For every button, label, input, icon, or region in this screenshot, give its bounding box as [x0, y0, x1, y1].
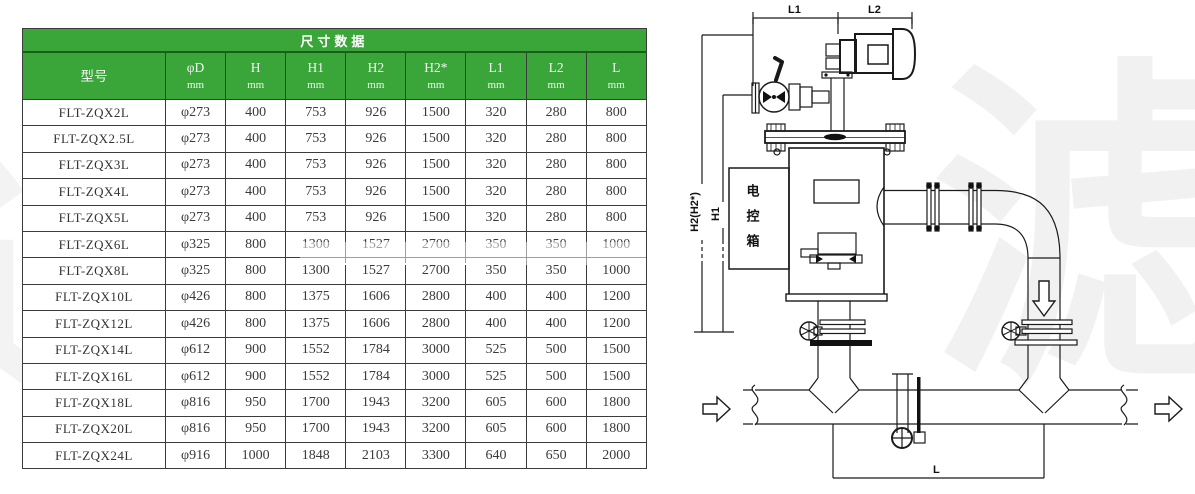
value-cell: 400 — [226, 205, 286, 231]
table-row: FLT-ZQX12Lφ4268001375160628004004001200 — [23, 311, 647, 337]
value-cell: 1500 — [406, 152, 466, 178]
value-cell: 525 — [466, 363, 526, 389]
value-cell: 350 — [466, 231, 526, 257]
value-cell: φ273 — [166, 126, 226, 152]
value-cell: 753 — [286, 100, 346, 126]
column-header: Hmm — [226, 52, 286, 100]
table-row: FLT-ZQX6Lφ3258001300152727003503501000 — [23, 231, 647, 257]
value-cell: 2103 — [346, 443, 406, 469]
value-cell: 1500 — [406, 205, 466, 231]
pipeline-valve — [892, 374, 925, 448]
model-cell: FLT-ZQX12L — [23, 311, 166, 337]
value-cell: φ273 — [166, 205, 226, 231]
value-cell: 800 — [226, 311, 286, 337]
value-cell: 320 — [466, 152, 526, 178]
table-row: FLT-ZQX4Lφ2734007539261500320280800 — [23, 179, 647, 205]
value-cell: 320 — [466, 126, 526, 152]
value-cell: 2800 — [406, 284, 466, 310]
table-header-row: 型号φDmmHmmH1mmH2mmH2*mmL1mmL2mmLmm — [23, 52, 647, 100]
inlet-valve — [752, 58, 829, 113]
value-cell: 1943 — [346, 390, 406, 416]
value-cell: 350 — [526, 258, 586, 284]
value-cell: 600 — [526, 390, 586, 416]
column-header: H2mm — [346, 52, 406, 100]
table-row: FLT-ZQX18Lφ8169501700194332006056001800 — [23, 390, 647, 416]
outlet-butterfly-valve — [1002, 320, 1077, 345]
value-cell: φ612 — [166, 363, 226, 389]
pipe-break-left — [752, 385, 758, 425]
dim-label-h2: H2(H2*) — [689, 192, 701, 232]
value-cell: 1527 — [346, 231, 406, 257]
flow-in-arrow-icon — [703, 397, 730, 421]
value-cell: 3200 — [406, 390, 466, 416]
flow-down-arrow-icon — [1033, 281, 1055, 316]
model-cell: FLT-ZQX16L — [23, 363, 166, 389]
sight-glass — [814, 180, 859, 203]
value-cell: 753 — [286, 126, 346, 152]
value-cell: φ273 — [166, 179, 226, 205]
model-cell: FLT-ZQX6L — [23, 231, 166, 257]
dimension-l: L — [833, 424, 1044, 478]
value-cell: 1606 — [346, 284, 406, 310]
value-cell: 900 — [226, 363, 286, 389]
value-cell: 2800 — [406, 311, 466, 337]
model-cell: FLT-ZQX3L — [23, 152, 166, 178]
column-header: H2*mm — [406, 52, 466, 100]
value-cell: 350 — [466, 258, 526, 284]
model-cell: FLT-ZQX4L — [23, 179, 166, 205]
value-cell: 900 — [226, 337, 286, 363]
flow-arrows — [703, 397, 1182, 421]
value-cell: 1200 — [586, 284, 646, 310]
value-cell: 3200 — [406, 416, 466, 442]
column-header: H1mm — [286, 52, 346, 100]
value-cell: 3300 — [406, 443, 466, 469]
value-cell: 1500 — [586, 363, 646, 389]
value-cell: 650 — [526, 443, 586, 469]
column-header: 型号 — [23, 52, 166, 100]
value-cell: 400 — [526, 284, 586, 310]
value-cell: 400 — [526, 311, 586, 337]
value-cell: 2700 — [406, 231, 466, 257]
value-cell: 1300 — [286, 231, 346, 257]
value-cell: 1000 — [226, 443, 286, 469]
value-cell: 2000 — [586, 443, 646, 469]
value-cell: 1200 — [586, 311, 646, 337]
flow-out-arrow-icon — [1155, 397, 1182, 421]
model-cell: FLT-ZQX2.5L — [23, 126, 166, 152]
dim-label-l2: L2 — [868, 4, 881, 16]
value-cell: φ273 — [166, 100, 226, 126]
value-cell: 800 — [586, 179, 646, 205]
value-cell: 525 — [466, 337, 526, 363]
value-cell: 500 — [526, 363, 586, 389]
value-cell: 1300 — [286, 258, 346, 284]
value-cell: 1527 — [346, 258, 406, 284]
value-cell: 1606 — [346, 311, 406, 337]
control-box: 电控箱 — [729, 168, 789, 269]
elbow-inner — [995, 224, 1028, 258]
value-cell: φ325 — [166, 231, 226, 257]
value-cell: 280 — [526, 152, 586, 178]
value-cell: φ816 — [166, 416, 226, 442]
value-cell: φ426 — [166, 311, 226, 337]
value-cell: 753 — [286, 179, 346, 205]
value-cell: 605 — [466, 390, 526, 416]
value-cell: 926 — [346, 126, 406, 152]
value-cell: 926 — [346, 205, 406, 231]
value-cell: 1500 — [406, 126, 466, 152]
value-cell: 800 — [226, 231, 286, 257]
value-cell: 1500 — [406, 100, 466, 126]
value-cell: 1375 — [286, 311, 346, 337]
value-cell: 400 — [226, 179, 286, 205]
value-cell: 3000 — [406, 337, 466, 363]
value-cell: 400 — [226, 100, 286, 126]
model-cell: FLT-ZQX10L — [23, 284, 166, 310]
value-cell: φ916 — [166, 443, 226, 469]
nozzle-bulge — [877, 187, 884, 226]
actuator-motor — [822, 29, 915, 131]
model-cell: FLT-ZQX14L — [23, 337, 166, 363]
dimension-table: 尺寸数据 型号φDmmHmmH1mmH2mmH2*mmL1mmL2mmLmm F… — [22, 28, 646, 469]
value-cell: 400 — [466, 311, 526, 337]
value-cell: φ325 — [166, 258, 226, 284]
value-cell: 1784 — [346, 363, 406, 389]
value-cell: 926 — [346, 100, 406, 126]
model-cell: FLT-ZQX20L — [23, 416, 166, 442]
value-cell: 280 — [526, 126, 586, 152]
model-cell: FLT-ZQX5L — [23, 205, 166, 231]
value-cell: 1000 — [586, 258, 646, 284]
table-title-row: 尺寸数据 — [23, 29, 647, 53]
table-row: FLT-ZQX20Lφ8169501700194332006056001800 — [23, 416, 647, 442]
column-header: φDmm — [166, 52, 226, 100]
value-cell: 753 — [286, 152, 346, 178]
dimension-h2-h1: H2(H2*) H1 — [689, 35, 753, 332]
value-cell: 280 — [526, 205, 586, 231]
value-cell: 1700 — [286, 416, 346, 442]
table-title: 尺寸数据 — [23, 29, 647, 53]
value-cell: 800 — [586, 152, 646, 178]
value-cell: 1500 — [586, 337, 646, 363]
table-row: FLT-ZQX24Lφ91610001848210333006406502000 — [23, 443, 647, 469]
model-cell: FLT-ZQX18L — [23, 390, 166, 416]
value-cell: φ816 — [166, 390, 226, 416]
table-row: FLT-ZQX16Lφ6129001552178430005255001500 — [23, 363, 647, 389]
value-cell: 753 — [286, 205, 346, 231]
filter-vessel — [786, 148, 887, 301]
dim-label-h1: H1 — [710, 207, 722, 221]
table-row: FLT-ZQX8Lφ3258001300152727003503501000 — [23, 258, 647, 284]
value-cell: 640 — [466, 443, 526, 469]
value-cell: 605 — [466, 416, 526, 442]
value-cell: 400 — [466, 284, 526, 310]
value-cell: 280 — [526, 100, 586, 126]
model-cell: FLT-ZQX2L — [23, 100, 166, 126]
control-box-label: 电控箱 — [745, 183, 760, 259]
value-cell: 600 — [526, 416, 586, 442]
value-cell: 280 — [526, 179, 586, 205]
model-cell: FLT-ZQX24L — [23, 443, 166, 469]
value-cell: φ273 — [166, 152, 226, 178]
value-cell: 400 — [226, 126, 286, 152]
table-row: FLT-ZQX14Lφ6129001552178430005255001500 — [23, 337, 647, 363]
dim-label-l: L — [933, 464, 940, 476]
value-cell: 1848 — [286, 443, 346, 469]
value-cell: 1800 — [586, 416, 646, 442]
value-cell: 1700 — [286, 390, 346, 416]
drain-pipe-valve — [800, 301, 872, 378]
value-cell: 950 — [226, 390, 286, 416]
value-cell: 1500 — [406, 179, 466, 205]
pipe-break-right — [1121, 385, 1127, 425]
value-cell: 320 — [466, 205, 526, 231]
table-row: FLT-ZQX5Lφ2734007539261500320280800 — [23, 205, 647, 231]
model-cell: FLT-ZQX8L — [23, 258, 166, 284]
value-cell: φ612 — [166, 337, 226, 363]
value-cell: 320 — [466, 179, 526, 205]
value-cell: 320 — [466, 100, 526, 126]
column-header: L2mm — [526, 52, 586, 100]
outlet-pipe — [884, 183, 1060, 378]
value-cell: 800 — [226, 258, 286, 284]
value-cell: 926 — [346, 179, 406, 205]
table-row: FLT-ZQX10Lφ4268001375160628004004001200 — [23, 284, 647, 310]
column-header: Lmm — [586, 52, 646, 100]
value-cell: 950 — [226, 416, 286, 442]
table-row: FLT-ZQX2.5Lφ2734007539261500320280800 — [23, 126, 647, 152]
value-cell: 800 — [586, 100, 646, 126]
value-cell: 926 — [346, 152, 406, 178]
table-row: FLT-ZQX2Lφ2734007539261500320280800 — [23, 100, 647, 126]
value-cell: 1800 — [586, 390, 646, 416]
installation-drawing: L1 L2 H2(H2*) H1 — [660, 0, 1195, 494]
value-cell: 800 — [586, 126, 646, 152]
inner-drive-unit — [818, 233, 856, 254]
value-cell: 3000 — [406, 363, 466, 389]
value-cell: 500 — [526, 337, 586, 363]
value-cell: 1943 — [346, 416, 406, 442]
valve-lever-handle — [775, 58, 782, 80]
value-cell: 1784 — [346, 337, 406, 363]
value-cell: 800 — [226, 284, 286, 310]
value-cell: 1375 — [286, 284, 346, 310]
datasheet-page: 过 过 滤 尺寸数据 型号φDmmHmmH1mmH2mmH2*mmL1mmL2m… — [0, 0, 1195, 494]
column-header: L1mm — [466, 52, 526, 100]
value-cell: 1000 — [586, 231, 646, 257]
dim-label-l1: L1 — [788, 4, 801, 16]
main-pipe — [743, 378, 1138, 425]
value-cell: 1552 — [286, 363, 346, 389]
value-cell: 800 — [586, 205, 646, 231]
value-cell: 350 — [526, 231, 586, 257]
value-cell: φ426 — [166, 284, 226, 310]
table-row: FLT-ZQX3Lφ2734007539261500320280800 — [23, 152, 647, 178]
value-cell: 400 — [226, 152, 286, 178]
value-cell: 2700 — [406, 258, 466, 284]
value-cell: 1552 — [286, 337, 346, 363]
